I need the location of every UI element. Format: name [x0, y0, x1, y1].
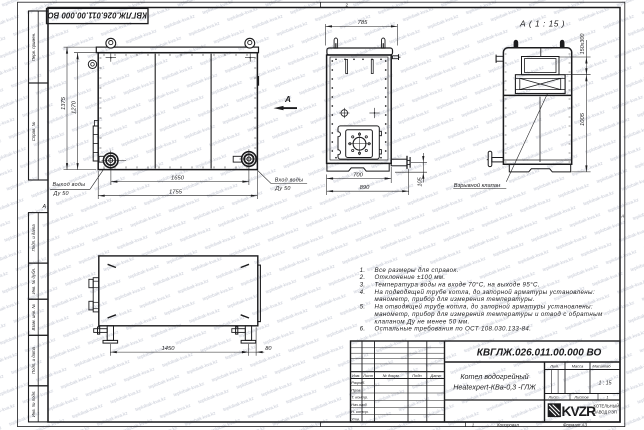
svg-text:1375: 1375: [61, 96, 67, 110]
svg-text:Лит.: Лит.: [549, 364, 559, 369]
svg-text:№ докум.: № докум.: [383, 373, 400, 378]
svg-text:80: 80: [265, 346, 272, 352]
svg-text:Дата: Дата: [429, 373, 441, 378]
svg-text:1450: 1450: [162, 346, 176, 352]
svg-text:Остальные требования по ОСТ 10: Остальные требования по ОСТ 108.030.133-…: [375, 326, 532, 333]
svg-text:Перв. примен.: Перв. примен.: [31, 33, 36, 62]
svg-text:Инв. № дубл.: Инв. № дубл.: [31, 268, 36, 294]
svg-text:А: А: [284, 95, 291, 104]
svg-text:1 : 15: 1 : 15: [599, 381, 612, 387]
svg-text:Подп.: Подп.: [412, 373, 422, 378]
svg-text:Справ. №: Справ. №: [31, 121, 36, 141]
svg-text:Изм.: Изм.: [352, 373, 360, 378]
svg-text:А: А: [42, 204, 47, 210]
svg-text:Пров.: Пров.: [351, 387, 361, 392]
svg-text:А ( 1 : 15 ): А ( 1 : 15 ): [519, 19, 565, 29]
svg-text:Нач.отд.: Нач.отд.: [351, 402, 367, 407]
svg-text:Лист: Лист: [362, 373, 374, 378]
svg-text:Листов: Листов: [573, 395, 588, 400]
svg-text:Т. контр.: Т. контр.: [351, 395, 368, 400]
svg-text:890: 890: [360, 185, 370, 191]
svg-text:КОТЕЛЬНЫЙ: КОТЕЛЬНЫЙ: [594, 404, 620, 409]
svg-text:КВГЛЖ.026.011.00.000 ВО: КВГЛЖ.026.011.00.000 ВО: [48, 11, 147, 20]
svg-text:Масштаб: Масштаб: [592, 364, 611, 369]
svg-text:Heatexpert-КВа-0,3 -ГЛЖ: Heatexpert-КВа-0,3 -ГЛЖ: [453, 383, 536, 392]
svg-text:Копировал: Копировал: [497, 423, 519, 428]
svg-text:2: 2: [346, 2, 349, 7]
svg-text:Взрывной клапан: Взрывной клапан: [454, 182, 501, 189]
svg-text:5.: 5.: [360, 304, 366, 311]
svg-text:Ду 50: Ду 50: [274, 186, 290, 192]
svg-text:Утв.: Утв.: [351, 416, 360, 421]
svg-text:Инв. № подл.: Инв. № подл.: [31, 391, 36, 418]
svg-text:Н. контр.: Н. контр.: [351, 409, 369, 414]
svg-text:Отклонение ±100 мм.: Отклонение ±100 мм.: [375, 274, 446, 281]
svg-text:2.: 2.: [359, 274, 366, 281]
svg-text:ЗАВОД РЭП: ЗАВОД РЭП: [594, 410, 617, 415]
svg-text:1005: 1005: [580, 112, 586, 126]
svg-text:манометр, прибор для измерения: манометр, прибор для измерения температу…: [375, 311, 604, 318]
svg-text:клапаном Ду не менее 50 мм.: клапаном Ду не менее 50 мм.: [375, 318, 470, 325]
svg-text:На отводящей трубе котла, до з: На отводящей трубе котла, до запорной ар…: [375, 304, 594, 311]
svg-text:Подп. и дата: Подп. и дата: [31, 346, 36, 374]
svg-text:Температура воды на входе 70°С: Температура воды на входе 70°С, на выход…: [375, 282, 540, 289]
svg-text:4.: 4.: [360, 289, 366, 296]
svg-text:Формат А3: Формат А3: [563, 423, 588, 428]
svg-text:1755: 1755: [169, 190, 183, 196]
svg-text:Котел водогрейный: Котел водогрейный: [460, 372, 528, 381]
svg-text:Подп. и дата: Подп. и дата: [31, 224, 36, 252]
svg-text:1.: 1.: [360, 267, 366, 274]
svg-text:Масса: Масса: [572, 364, 584, 369]
svg-text:150х300: 150х300: [580, 34, 586, 55]
svg-text:Ду 50: Ду 50: [53, 191, 69, 197]
svg-text:Вход воды: Вход воды: [275, 178, 303, 184]
svg-text:А: А: [620, 214, 624, 219]
svg-text:700: 700: [353, 172, 363, 178]
svg-text:KVZR: KVZR: [562, 404, 597, 419]
svg-text:3.: 3.: [360, 282, 366, 289]
svg-text:На подводящей трубе котла, до: На подводящей трубе котла, до запорной а…: [375, 289, 596, 296]
svg-text:Взам. инв. №: Взам. инв. №: [31, 304, 36, 331]
svg-text:1270: 1270: [71, 100, 77, 114]
svg-text:Выход воды: Выход воды: [53, 182, 86, 188]
svg-text:манометр, прибор для измерения: манометр, прибор для измерения температу…: [375, 296, 535, 303]
svg-text:6.: 6.: [360, 326, 366, 333]
svg-text:1650: 1650: [171, 175, 185, 181]
svg-text:1: 1: [606, 395, 608, 400]
svg-text:105: 105: [418, 176, 424, 186]
svg-text:Все размеры для справок.: Все размеры для справок.: [375, 267, 459, 274]
svg-text:Разраб.: Разраб.: [351, 380, 365, 385]
svg-text:785: 785: [358, 20, 368, 26]
svg-text:Лист: Лист: [547, 395, 559, 400]
svg-text:КВГЛЖ.026.011.00.000 ВО: КВГЛЖ.026.011.00.000 ВО: [477, 347, 602, 358]
